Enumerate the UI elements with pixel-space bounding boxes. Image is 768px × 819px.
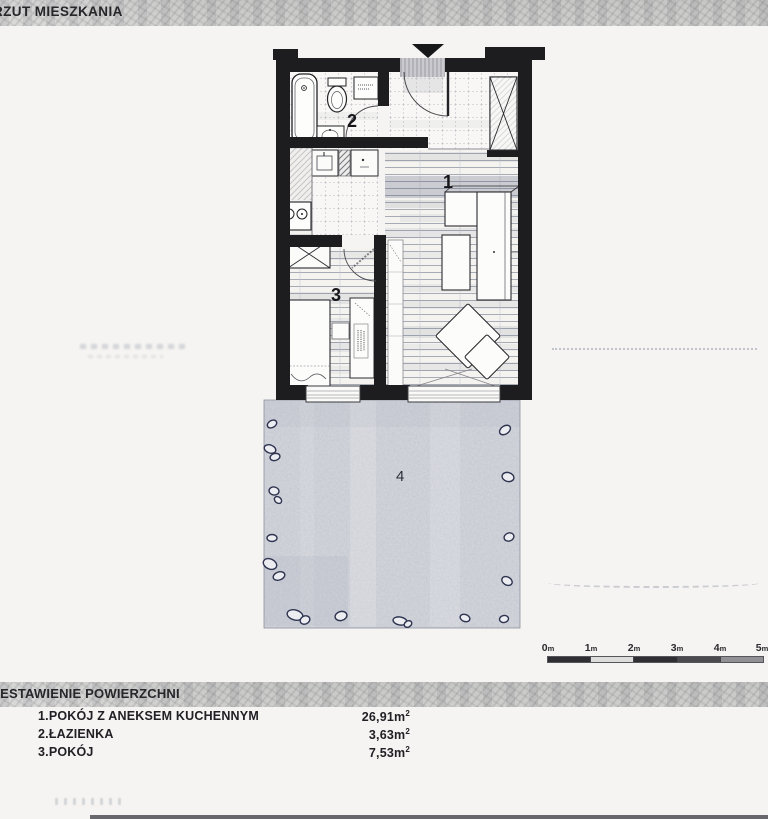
- scan-marks-artifact: [55, 798, 125, 805]
- scan-smudge-artifact: [80, 344, 185, 349]
- scale-tick-0: 0m: [542, 642, 555, 654]
- scan-smudge-artifact: [88, 355, 163, 358]
- kitchen-hob-cabinet: [351, 150, 378, 176]
- shaft: [490, 77, 517, 150]
- scale-tick-3: 3m: [671, 642, 684, 654]
- room-area: 3,63m2: [369, 727, 410, 745]
- nightstand: [332, 323, 349, 339]
- scan-wave-artifact: [548, 578, 760, 588]
- scan-dash-artifact: [552, 348, 757, 350]
- kitchen-sink: [312, 150, 338, 176]
- room-name: 2.ŁAZIENKA: [38, 727, 114, 745]
- room-name: 1.POKÓJ Z ANEKSEM KUCHENNYM: [38, 709, 259, 727]
- window-bedroom: [306, 386, 360, 402]
- table: [442, 235, 470, 290]
- wall-cabinet: [388, 240, 403, 392]
- scanned-floor-plan-page: RZUT MIESZKANIA: [0, 0, 768, 819]
- scale-tick-2: 2m: [628, 642, 641, 654]
- room-label-bedroom: 3: [331, 285, 341, 305]
- bathtub: [292, 74, 317, 144]
- scale-segment: [548, 657, 590, 662]
- floor-plan-drawing: 1 2 3 4: [250, 38, 550, 638]
- page-title: RZUT MIESZKANIA: [0, 4, 123, 19]
- scale-bar-segments: [548, 657, 763, 662]
- bed: [286, 300, 330, 392]
- table-row: 1.POKÓJ Z ANEKSEM KUCHENNYM 26,91m2: [38, 709, 410, 727]
- scale-segment: [720, 657, 763, 662]
- toilet: [328, 78, 347, 112]
- entrance-arrow-icon: [412, 44, 444, 58]
- table-row: 2.ŁAZIENKA 3,63m2: [38, 727, 410, 745]
- scale-tick-1: 1m: [585, 642, 598, 654]
- room-label-garden: 4: [396, 468, 404, 485]
- room-area: 7,53m2: [369, 745, 410, 763]
- room-label-bathroom: 2: [347, 111, 357, 131]
- washing-machine: [354, 77, 378, 99]
- scale-tick-5: 5m: [756, 642, 768, 654]
- room-area: 26,91m2: [362, 709, 410, 727]
- kitchen-hatch-strip: [339, 150, 350, 176]
- scale-segment: [677, 657, 720, 662]
- window-living-room: [408, 386, 500, 402]
- scale-tick-4: 4m: [714, 642, 727, 654]
- page-header-band: RZUT MIESZKANIA: [0, 0, 768, 26]
- area-summary-rows: 1.POKÓJ Z ANEKSEM KUCHENNYM 26,91m2 2.ŁA…: [38, 709, 410, 763]
- desk: [350, 298, 374, 378]
- garden-area: [262, 400, 520, 629]
- scale-segment: [590, 657, 633, 662]
- room-name: 3.POKÓJ: [38, 745, 94, 763]
- scan-edge-artifact: [90, 815, 768, 819]
- table-row: 3.POKÓJ 7,53m2: [38, 745, 410, 763]
- room-label-living-room: 1: [443, 172, 453, 192]
- scale-bar: 0m 1m 2m 3m 4m 5m: [540, 642, 768, 668]
- scale-segment: [633, 657, 676, 662]
- area-summary-title: ZESTAWIENIE POWIERZCHNI: [0, 686, 180, 701]
- area-summary-band: ZESTAWIENIE POWIERZCHNI: [0, 682, 768, 707]
